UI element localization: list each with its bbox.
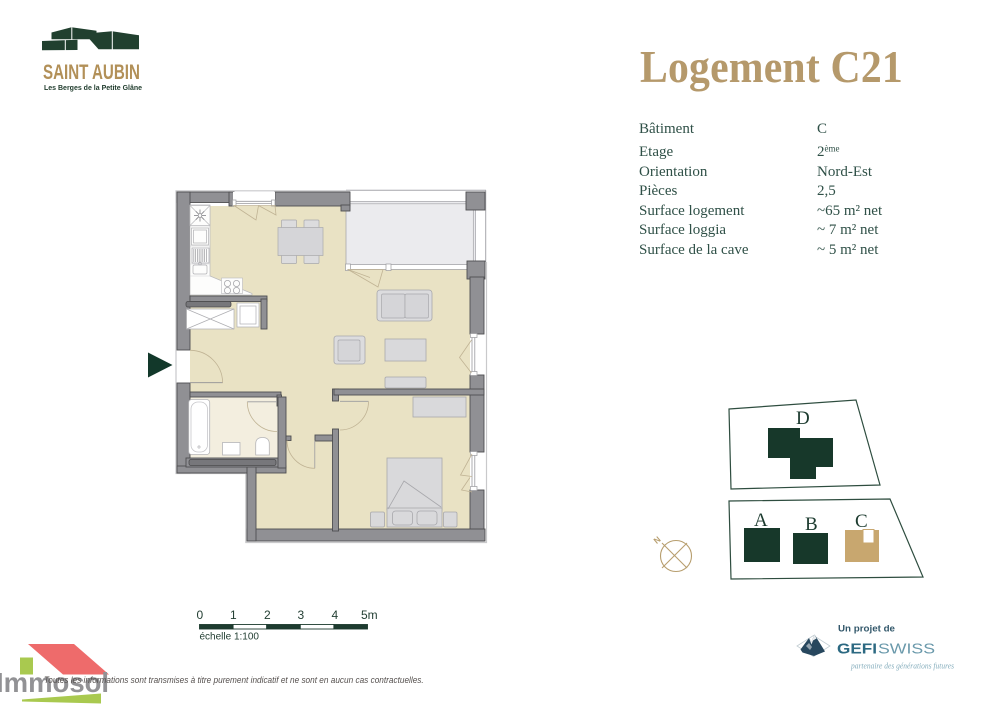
svg-text:4: 4 (332, 608, 339, 622)
svg-text:1: 1 (230, 608, 237, 622)
svg-text:B: B (805, 514, 818, 535)
svg-text:N: N (651, 534, 662, 546)
svg-text:A: A (754, 510, 768, 531)
svg-text:2: 2 (264, 608, 271, 622)
svg-text:GEFI: GEFI (837, 642, 877, 658)
svg-text:3: 3 (298, 608, 305, 622)
svg-text:partenaire des générations fut: partenaire des générations futures (850, 661, 954, 671)
svg-text:Un projet de: Un projet de (838, 624, 895, 635)
svg-text:5m: 5m (361, 608, 378, 622)
svg-text:SWISS: SWISS (878, 642, 935, 658)
svg-text:D: D (796, 408, 810, 429)
svg-text:C: C (855, 511, 868, 532)
svg-text:échelle 1:100: échelle 1:100 (200, 632, 260, 643)
svg-text:0: 0 (197, 608, 204, 622)
